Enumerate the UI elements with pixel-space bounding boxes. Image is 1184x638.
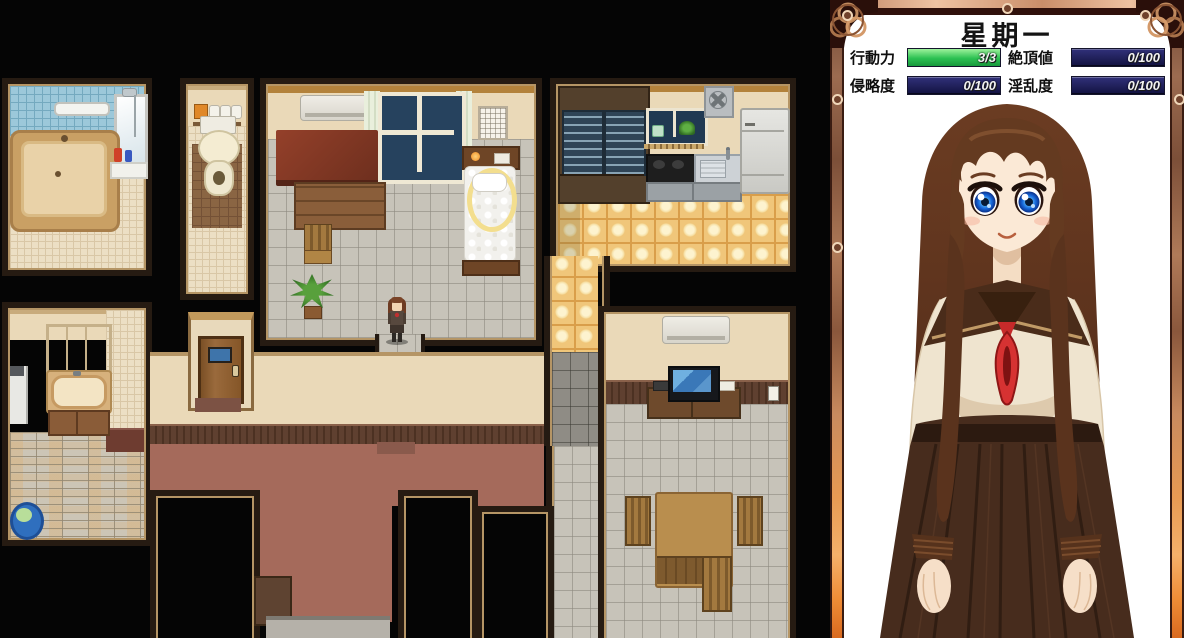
burner: [672, 160, 684, 169]
frame-stud-icon: [832, 94, 843, 105]
bathtub[interactable]: [10, 130, 120, 232]
bedroom-window[interactable]: [378, 92, 466, 184]
corridor-shadow-tiles: [552, 352, 598, 446]
frame-stud-icon: [832, 242, 843, 253]
shampoo-bottle-blue[interactable]: [125, 150, 132, 162]
stat-bar-climax: 0/100: [1072, 49, 1164, 66]
power-outlet-icon: [768, 386, 779, 401]
character-portrait: [852, 94, 1162, 638]
chair[interactable]: [304, 224, 330, 270]
windowsill-bottles: [652, 125, 664, 137]
player-sprite-image: [384, 292, 410, 346]
bed-pillow: [472, 173, 507, 192]
stat-bar-lewdness: 0/100: [1072, 77, 1164, 94]
desk[interactable]: [276, 130, 378, 186]
door-window: [208, 347, 232, 363]
towel-rack[interactable]: [54, 102, 110, 116]
faucet-icon: [73, 371, 81, 376]
tissue-box: [494, 153, 510, 164]
stat-bar-action: 3/3: [908, 49, 1000, 66]
air-conditioner: [300, 95, 372, 121]
washroom-side-band: [106, 428, 144, 452]
room-dining: [604, 312, 790, 638]
window-divider: [673, 111, 676, 137]
stat-value: 0/100: [1127, 77, 1160, 94]
kitchen-corridor[interactable]: [550, 256, 604, 446]
dining-chair[interactable]: [702, 556, 732, 612]
room-toilet: [186, 84, 248, 294]
shampoo-bottle-red[interactable]: [114, 148, 122, 162]
frame-stud-icon: [1174, 94, 1184, 105]
dining-floor-west[interactable]: [552, 446, 606, 638]
corridor-kitchen-tiles: [552, 256, 598, 352]
bed[interactable]: [462, 146, 516, 272]
dining-chair[interactable]: [737, 496, 763, 546]
kitchen-window: [646, 108, 708, 146]
map-view: [0, 0, 830, 638]
dish-cabinet[interactable]: [558, 86, 650, 204]
stat-label-aggression: 侵略度: [850, 75, 900, 96]
game-screen: 星期一 行動力 3/3 絶頂値 0/100 侵略度 0/100 淫乱度 0/10…: [0, 0, 1184, 638]
void-cutout: [156, 496, 254, 638]
television[interactable]: [668, 366, 720, 402]
stat-label-lewdness: 淫乱度: [1008, 75, 1064, 96]
tv-screen: [673, 370, 711, 392]
frame-stud-icon: [1002, 3, 1013, 14]
door-knob: [232, 365, 239, 377]
vanity-basin: [51, 375, 107, 409]
vanity-drawers: [48, 410, 110, 436]
stat-value: 3/3: [978, 49, 996, 66]
washer-panel: [10, 366, 24, 376]
void-cutout: [482, 512, 548, 638]
chair-back: [304, 224, 332, 252]
door-shadow: [377, 442, 415, 454]
entrance-step[interactable]: [266, 616, 390, 638]
kitchen-floor-shading: [558, 194, 580, 264]
fridge-door-line: [742, 130, 784, 132]
lamp-icon: [471, 152, 480, 161]
air-conditioner: [662, 316, 730, 344]
void-cutout: [404, 496, 472, 638]
sink-vanity[interactable]: [46, 370, 108, 434]
window-muntin-h: [382, 130, 454, 135]
windowsill-plant: [679, 121, 695, 135]
hallway-wainscot: [150, 424, 544, 446]
bathtub-basin: [21, 141, 107, 217]
fridge-handle: [745, 123, 755, 126]
shower-hose: [134, 95, 136, 137]
kitchen-floor[interactable]: [558, 194, 788, 264]
room-bathroom: [8, 84, 146, 270]
dining-chair[interactable]: [625, 496, 651, 546]
plant-pot: [304, 306, 322, 319]
chair-seat: [304, 250, 332, 264]
room-washroom: [8, 308, 146, 540]
utensil-rack: [644, 144, 704, 149]
burner: [653, 160, 665, 169]
toilet-drain: [213, 171, 225, 185]
toilet-bowl: [204, 160, 234, 196]
dresser[interactable]: [294, 182, 386, 230]
door-shadow: [195, 398, 241, 412]
calendar[interactable]: [478, 106, 508, 140]
stat-bar-aggression: 0/100: [908, 77, 1000, 94]
washing-machine[interactable]: [10, 366, 28, 424]
washroom-mirror-cabinet[interactable]: [46, 324, 112, 376]
player-sprite[interactable]: [384, 292, 410, 346]
toilet-door-alcove: [188, 312, 254, 411]
plant-leaves: [290, 274, 334, 310]
hall-door-left[interactable]: [198, 336, 244, 404]
bathtub-drain: [61, 135, 68, 142]
stat-value: 0/100: [963, 77, 996, 94]
fridge-drawer: [742, 174, 784, 176]
bath-shelf: [110, 162, 148, 179]
stat-label-climax: 絶頂値: [1008, 47, 1064, 68]
refrigerator[interactable]: [740, 108, 790, 194]
counter-cabinets: [646, 182, 742, 202]
laundry-basket[interactable]: [10, 502, 44, 540]
stat-label-action: 行動力: [850, 47, 900, 68]
bathtub-plug: [55, 171, 61, 177]
stat-value: 0/100: [1127, 49, 1160, 66]
faucet-icon: [726, 147, 730, 160]
cabinet-glass-doors: [562, 110, 646, 176]
laundry-contents: [16, 508, 32, 522]
bed-footboard: [462, 260, 520, 276]
toilet[interactable]: [188, 114, 246, 224]
room-kitchen: [556, 84, 790, 266]
cabinet-drawers: [560, 174, 644, 200]
sink-basin: [700, 160, 726, 178]
stats-grid: 行動力 3/3 絶頂値 0/100 侵略度 0/100 淫乱度 0/100: [850, 47, 1166, 96]
fan-blades: [709, 91, 727, 109]
exhaust-fan-icon: [704, 86, 734, 118]
potted-plant[interactable]: [290, 274, 334, 318]
